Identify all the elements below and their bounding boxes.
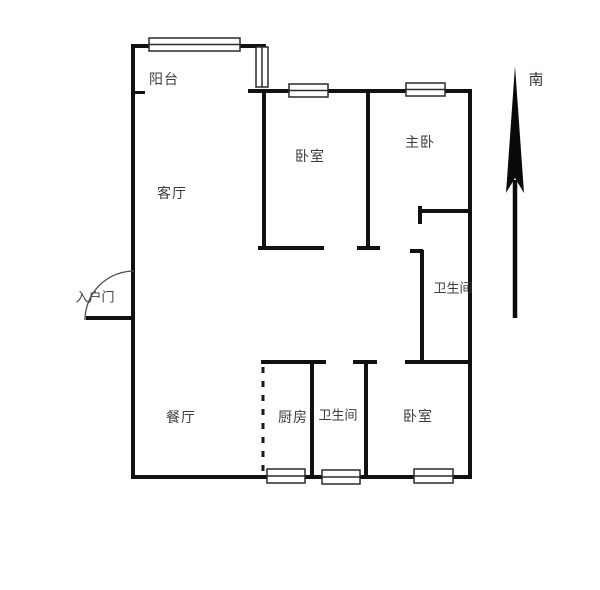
floor-plan: 阳台 客厅 卧室 主卧 卫生间 入户门 餐厅 厨房 卫生间 卧室 南 bbox=[0, 0, 600, 590]
compass-arrow-icon bbox=[506, 66, 524, 193]
wall-divider-end-cap bbox=[357, 246, 380, 250]
wall-bath-upper-left-wall bbox=[420, 250, 424, 363]
wall-bedroom-top-south-wall bbox=[258, 246, 324, 250]
room-label-bath-lower: 卫生间 bbox=[318, 410, 357, 423]
room-label-bedroom-top: 卧室 bbox=[295, 150, 325, 164]
entrance-door-leaf bbox=[86, 316, 134, 320]
room-label-master-bedroom: 主卧 bbox=[405, 136, 435, 150]
room-label-dining-room: 餐厅 bbox=[166, 411, 196, 425]
wall-kitchen-north-wall bbox=[261, 360, 326, 364]
room-label-balcony: 阳台 bbox=[149, 73, 179, 87]
room-label-kitchen: 厨房 bbox=[278, 411, 308, 425]
room-label-entrance-door: 入户门 bbox=[75, 292, 114, 305]
wall-master-south-end-cap bbox=[418, 206, 422, 224]
wall-left-outer-wall bbox=[131, 44, 135, 479]
room-label-bath-upper: 卫生间 bbox=[433, 283, 472, 296]
wall-master-south-wall bbox=[419, 209, 472, 213]
wall-kitchen-bath-divider bbox=[310, 360, 314, 479]
room-label-living-room: 客厅 bbox=[157, 187, 187, 201]
room-label-bedroom-lower: 卧室 bbox=[403, 410, 433, 424]
wall-bath-bedroom-divider bbox=[364, 360, 368, 479]
wall-bath-upper-top-cap bbox=[410, 249, 423, 253]
wall-bath-upper-bottom-wall bbox=[405, 360, 472, 364]
wall-balcony-divider-tick bbox=[131, 91, 145, 94]
wall-living-bedroom-divider bbox=[262, 91, 266, 250]
wall-bedroom-master-divider bbox=[366, 91, 370, 247]
compass-south-label: 南 bbox=[528, 73, 543, 88]
